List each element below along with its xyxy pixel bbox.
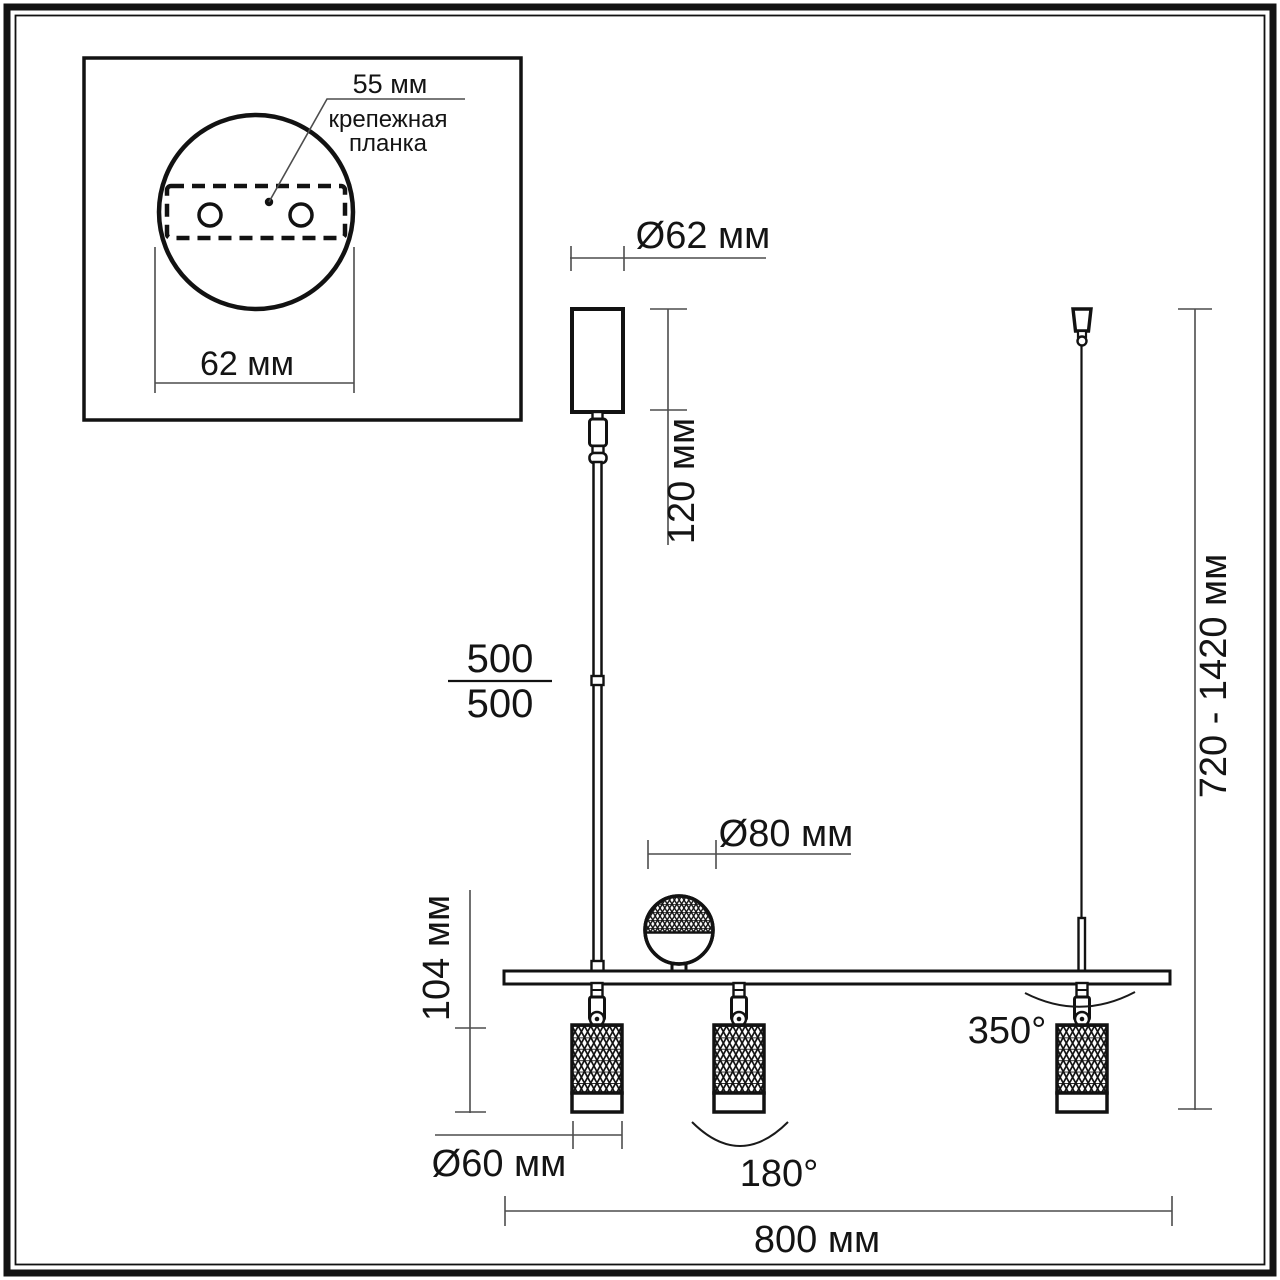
light-bar (504, 971, 1170, 984)
dim-rotation-angle: 350° (968, 1010, 1047, 1052)
spotlight-3 (1057, 983, 1107, 1112)
suspension-rod (592, 462, 604, 971)
cord-ceiling-cup (1073, 309, 1091, 331)
ceiling-base-circle (159, 115, 353, 309)
spot-shade (572, 1025, 622, 1093)
dim-rod-upper: 500 (467, 637, 534, 681)
cord-ball (1078, 337, 1087, 346)
dim-spot-diameter: Ø60 мм (432, 1143, 567, 1185)
spot-shade (1057, 1025, 1107, 1093)
sphere-mesh (644, 895, 714, 933)
spotlight-2 (714, 983, 764, 1112)
suspension-cord (1073, 309, 1091, 971)
dim-bar-length: 800 мм (754, 1219, 880, 1261)
pendant-light-diagram: 55 мм крепежная планка 62 мм (0, 0, 1280, 1280)
technical-drawing-page: 55 мм крепежная планка 62 мм (0, 0, 1280, 1280)
dim-rod-lower: 500 (467, 682, 534, 726)
dim-sphere-diameter: Ø80 мм (719, 813, 854, 855)
spot-shade (714, 1025, 764, 1093)
spot-rim (714, 1093, 764, 1112)
spot-rim (1057, 1093, 1107, 1112)
inset-panel: 55 мм крепежная планка 62 мм (84, 58, 521, 420)
spot-rim (572, 1093, 622, 1112)
dim-height-range: 720 - 1420 мм (1193, 554, 1235, 799)
rod-joint (592, 676, 604, 685)
decor-sphere (644, 895, 714, 972)
mounting-hole-left (199, 204, 221, 226)
mounting-hole-right (290, 204, 312, 226)
label-plate-line1: крепежная (329, 106, 448, 133)
dim-canopy-diameter: Ø62 мм (636, 215, 771, 257)
cord-lower-rod (1079, 918, 1086, 971)
dim-canopy-height: 120 мм (661, 418, 703, 544)
dim-spot-height: 104 мм (416, 895, 458, 1021)
tilt-arc-180 (692, 1122, 788, 1146)
ceiling-canopy (572, 309, 623, 463)
dim-tilt-angle: 180° (740, 1153, 819, 1195)
label-base-width: 62 мм (200, 345, 294, 383)
spotlight-1 (572, 983, 622, 1112)
cord-grip (590, 419, 607, 446)
dimension-labels: Ø62 мм 120 мм 500 500 Ø80 мм 104 мм Ø60 … (416, 215, 1235, 1261)
label-hole-spacing: 55 мм (353, 69, 428, 99)
label-plate-line2: планка (349, 130, 428, 157)
